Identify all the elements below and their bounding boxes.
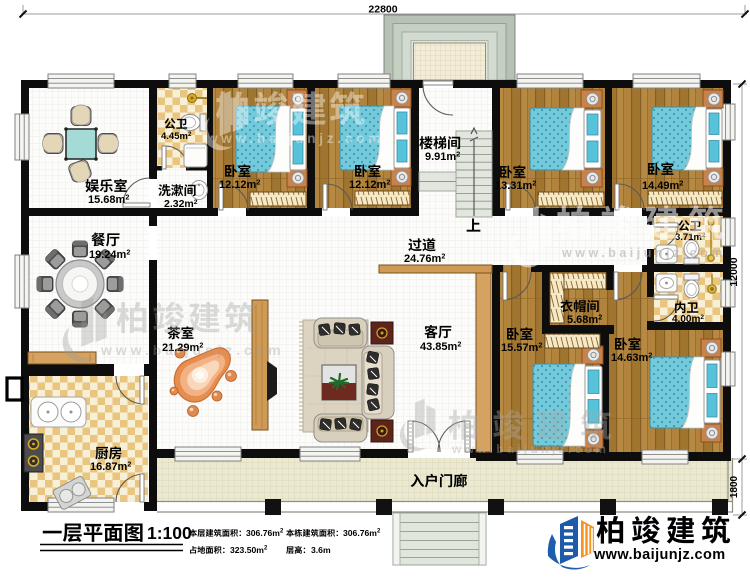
- svg-text:19.24m2: 19.24m2: [89, 248, 130, 261]
- svg-text:323.50m: 323.50m: [230, 545, 264, 555]
- svg-text:4.00m2: 4.00m2: [672, 314, 704, 325]
- svg-text:24.76m2: 24.76m2: [404, 252, 445, 265]
- svg-text:12.12m2: 12.12m2: [349, 178, 390, 191]
- svg-text:1800: 1800: [729, 475, 740, 498]
- svg-text:www.baijunjz.com: www.baijunjz.com: [451, 442, 609, 456]
- svg-text:www.baijunjz.com: www.baijunjz.com: [561, 246, 726, 260]
- svg-text:www.baijunjz.com: www.baijunjz.com: [100, 342, 285, 358]
- svg-text:4.45m2: 4.45m2: [161, 131, 192, 142]
- svg-text:1:100: 1:100: [147, 523, 192, 543]
- svg-text:www.baijunjz.com: www.baijunjz.com: [593, 547, 726, 563]
- svg-text:14.63m2: 14.63m2: [611, 351, 652, 364]
- svg-text:3.6m: 3.6m: [311, 545, 331, 555]
- svg-text:2.32m2: 2.32m2: [164, 198, 198, 210]
- svg-text:43.85m2: 43.85m2: [420, 340, 461, 353]
- svg-text:306.76m: 306.76m: [246, 528, 280, 538]
- svg-text:12000: 12000: [728, 257, 740, 286]
- svg-text:9.91m2: 9.91m2: [425, 150, 460, 163]
- svg-text:15.68m2: 15.68m2: [88, 193, 129, 206]
- svg-text:306.76m: 306.76m: [343, 528, 377, 538]
- svg-text:www.baijunjz.com: www.baijunjz.com: [206, 131, 384, 146]
- svg-text:14.49m2: 14.49m2: [642, 179, 683, 192]
- svg-text:15.57m2: 15.57m2: [501, 341, 542, 354]
- svg-text:5.68m2: 5.68m2: [567, 313, 602, 326]
- svg-text:13.31m2: 13.31m2: [495, 179, 536, 192]
- svg-text:12.12m2: 12.12m2: [219, 178, 260, 191]
- svg-text:22800: 22800: [368, 4, 397, 16]
- svg-text:16.87m2: 16.87m2: [90, 460, 131, 473]
